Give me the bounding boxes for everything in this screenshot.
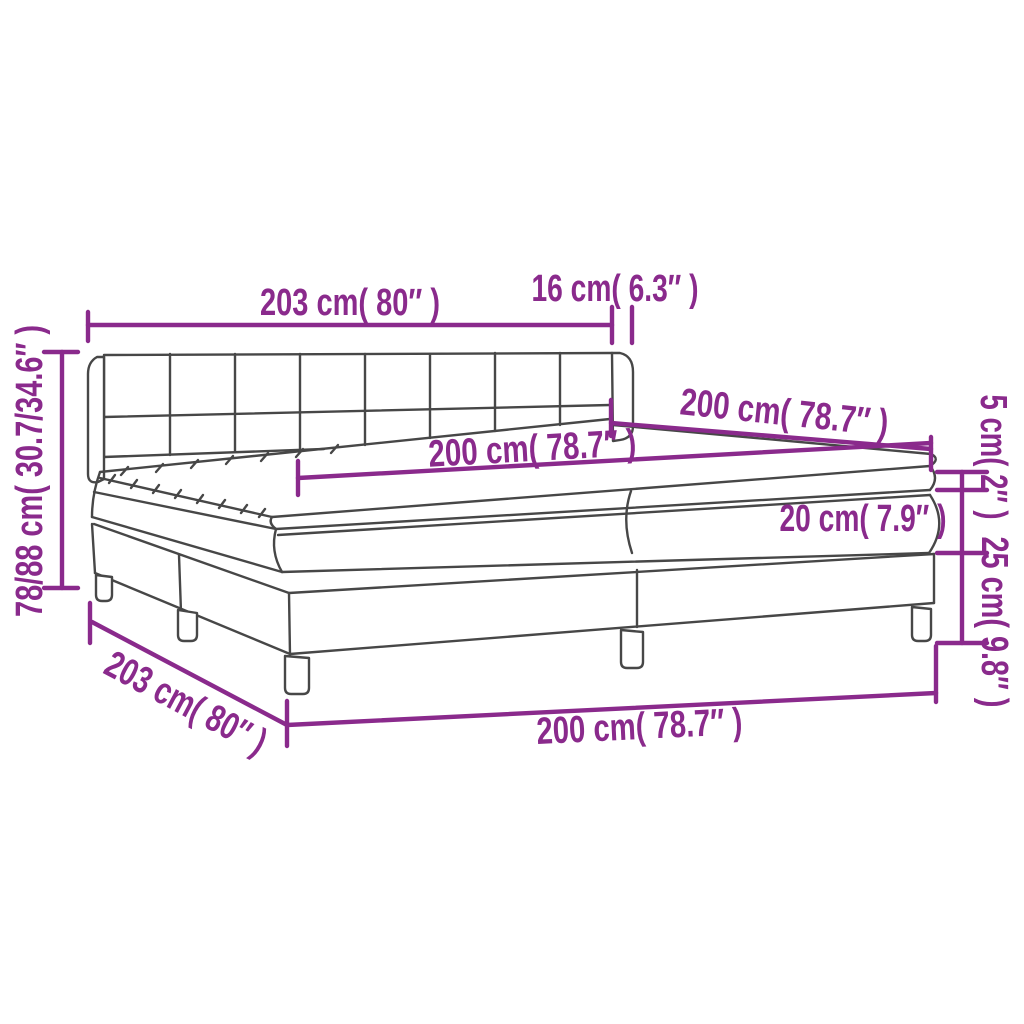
leg-left-mid xyxy=(178,610,197,641)
legs xyxy=(96,575,931,694)
leg-front-corner xyxy=(285,656,309,694)
screenshot-canvas: 203 cm( 80″ ) 16 cm( 6.3″ ) 78/88 cm( 30… xyxy=(0,0,1024,1024)
headboard-mid-seam xyxy=(104,405,610,417)
dimension-label-headboard-depth: 16 cm( 6.3″ ) xyxy=(532,268,699,310)
leg-front-mid xyxy=(621,630,643,668)
bed-dimensions-diagram: 203 cm( 80″ ) 16 cm( 6.3″ ) 78/88 cm( 30… xyxy=(0,0,1024,1024)
dim-total-height: 78/88 cm( 30.7/34.6″ ) xyxy=(9,325,78,617)
leg-front-right xyxy=(912,607,931,641)
box-left-end-edge xyxy=(92,524,95,573)
box-left-seam xyxy=(179,555,181,612)
leg-left xyxy=(96,575,112,601)
dim-headboard-depth: 16 cm( 6.3″ ) xyxy=(532,268,699,343)
dimension-label-mattress-width: 200 cm( 78.7″ ) xyxy=(427,422,637,476)
dimension-label-total-height: 78/88 cm( 30.7/34.6″ ) xyxy=(9,325,51,617)
dimension-label-topper-height: 5 cm( 2″ ) xyxy=(972,395,1014,520)
dim-mattress-height: 20 cm( 7.9″ ) xyxy=(780,498,947,540)
mattress-bottom-front-edge xyxy=(282,553,929,572)
box-front-corner-edge xyxy=(289,593,290,655)
box-spring-base xyxy=(92,524,934,655)
dimension-label-bed-length-bottom: 200 cm( 78.7″ ) xyxy=(536,701,744,753)
dim-right-height-bracket: 5 cm( 2″ ) 25 cm( 9.8″ ) xyxy=(937,395,1015,708)
mattress-split-seam xyxy=(626,491,632,553)
box-bottom-edge xyxy=(95,573,934,654)
headboard-left-wing xyxy=(88,357,104,482)
dimension-label-bed-width-top: 203 cm( 80″ ) xyxy=(260,282,440,324)
dimension-label-mattress-height: 20 cm( 7.9″ ) xyxy=(780,498,947,540)
dimension-label-base-height: 25 cm( 9.8″ ) xyxy=(973,537,1015,708)
dim-bed-length-bottom: 200 cm( 78.7″ ) xyxy=(287,646,936,753)
